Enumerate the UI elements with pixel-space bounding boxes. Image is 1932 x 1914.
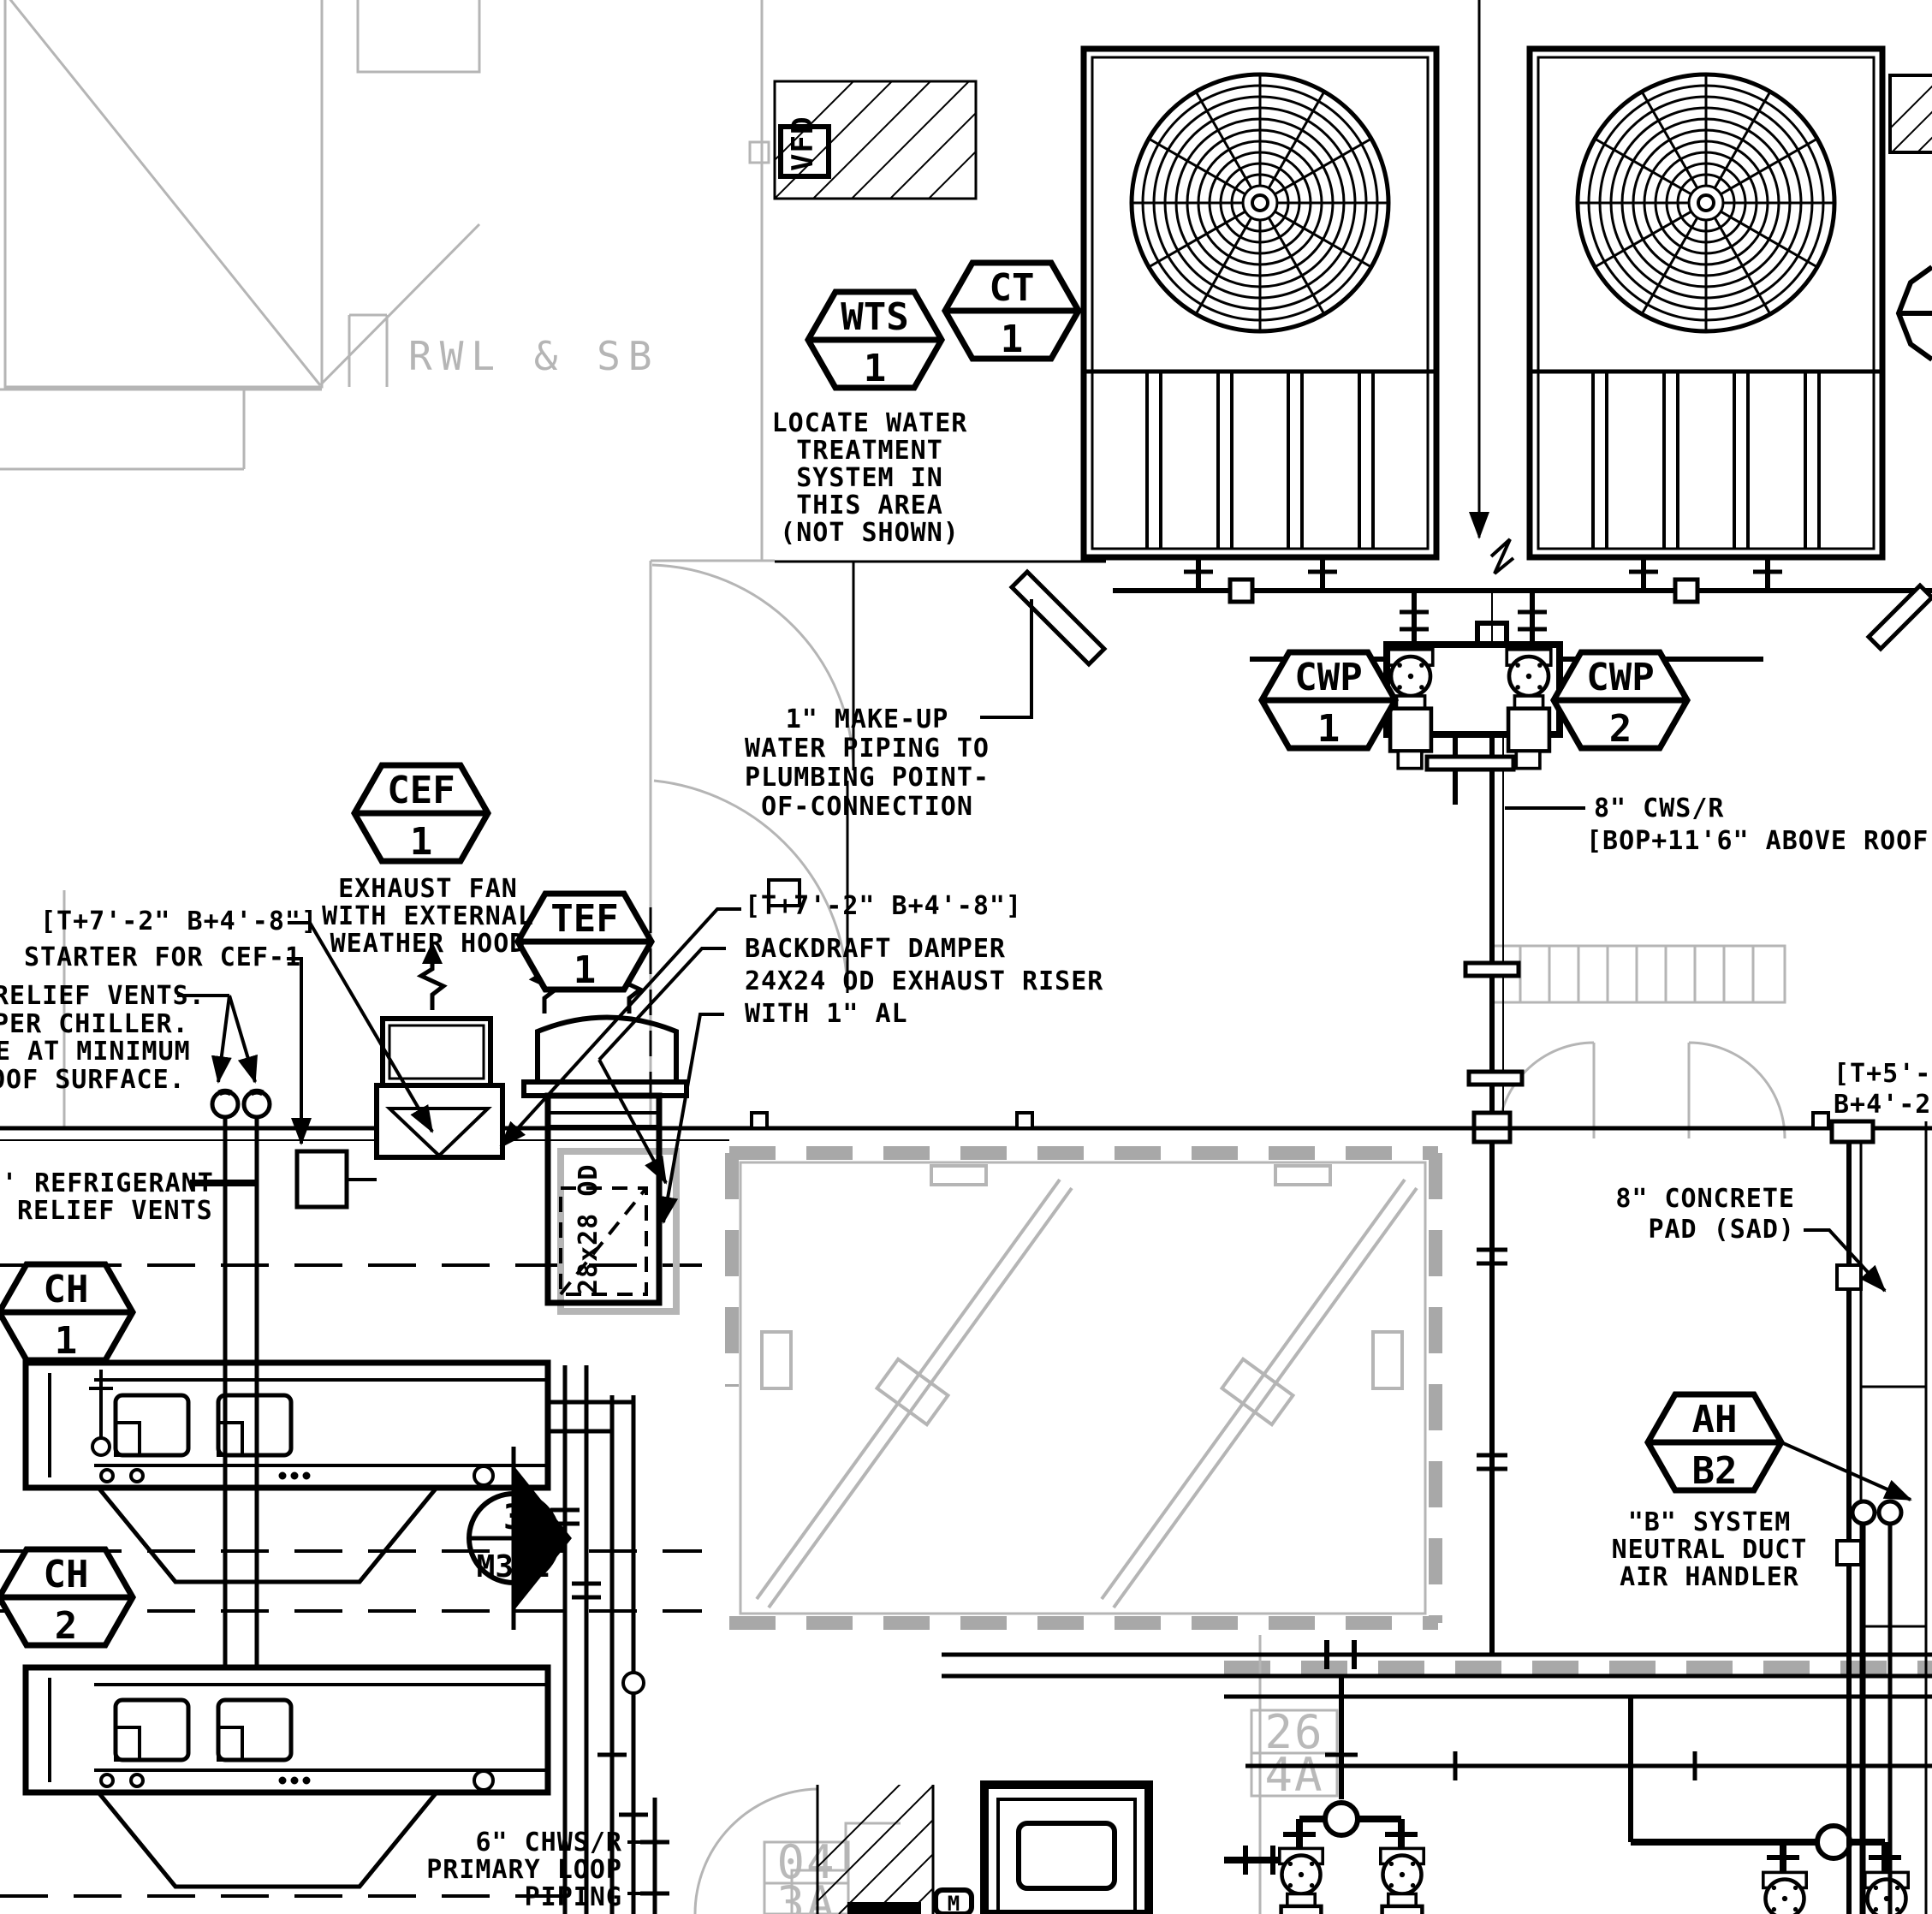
tag-number: 1 [574,948,597,992]
vfd-label: VFD [786,116,820,171]
note-line: WEATHER HOOD [330,929,526,959]
annotation-backdraft: BACKDRAFT DAMPER 24X24 OD EXHAUST RISER … [745,934,1103,1029]
note-line: 6" CHWS/R [475,1828,622,1858]
room-tag-26: 26 4A [1251,1705,1337,1802]
tag-label: CWP [1586,656,1654,699]
note-line: TREATMENT [796,436,943,466]
cooling-tower-2 [1530,49,1882,557]
mechanical-roof-plan: 26 4A 04 3A RWL & SB VFD [0,0,1932,1914]
note-line: PAD (SAD) [1648,1215,1795,1245]
annotation-bracket-left: [T+7'-2" B+4'-8"] [40,906,318,936]
note-line: OF-CONNECTION [761,792,973,822]
note-line: WATER PIPING TO [745,734,990,764]
note-line: E AT MINIMUM [0,1037,191,1067]
tag-label: CEF [387,769,455,812]
tag-ch-2: CH 2 [0,1549,133,1648]
tag-cef-1: CEF 1 [354,765,488,864]
note-line: PIPING [525,1882,622,1912]
tag-label: CH [44,1268,89,1311]
note-line: PRIMARY LOOP [426,1855,622,1885]
tag-label: TEF [550,897,618,941]
motor-label: M [948,1892,960,1914]
note-line: WITH EXTERNAL [322,901,534,931]
note-line: THIS AREA [796,490,943,520]
tag-number: 1 [410,820,433,864]
tag-number: 1 [55,1319,78,1363]
room-suffix: 3A [776,1876,835,1914]
pump-assembly-left [1224,1803,1424,1914]
tag-ah-b2: AH B2 [1648,1394,1781,1493]
top-leader-arrow [1479,0,1513,574]
duct-size-label: 28x28 OD [574,1164,603,1295]
annotation-locate-water: LOCATE WATER TREATMENT SYSTEM IN THIS AR… [772,408,968,548]
note-line: OOF SURFACE. [0,1065,186,1095]
annotation-cws-r: 8" CWS/R [BOP+11'6" ABOVE ROOF] [1586,794,1932,856]
section-sheet: M302 [477,1549,551,1584]
tag-ch-1: CH 1 [0,1264,133,1363]
note-line: WITH 1" AL [745,999,908,1029]
note-line: (NOT SHOWN) [780,518,960,548]
note-line: PLUMBING POINT- [745,763,990,793]
note-line: RELIEF VENTS [17,1196,213,1226]
note-line: LOCATE WATER [772,408,968,438]
tag-cwp-1: CWP 1 [1262,652,1395,751]
note-line: ' REFRIGERANT [2,1168,214,1198]
note-line: RELIEF VENTS. [0,981,205,1011]
note-line: NEUTRAL DUCT [1612,1535,1808,1565]
note-line: 1" MAKE-UP [786,704,949,734]
note-line: "B" SYSTEM [1628,1507,1792,1537]
note-line: 8" CWS/R [1594,794,1725,823]
note-line: PER CHILLER. [0,1009,189,1039]
tag-label: CT [990,266,1035,310]
tag-number: 2 [1609,707,1632,751]
drawing-canvas: 26 4A 04 3A RWL & SB VFD [0,0,1932,1914]
annotation-bracket-center: [T+7'-2" B+4'-8"] [745,891,1022,921]
tag-number: B2 [1692,1449,1738,1493]
room-tag-04: 04 3A [764,1835,848,1914]
edge-partials [1866,75,1932,360]
tag-number: 1 [1001,318,1024,361]
annotation-relief-note: RELIEF VENTS. PER CHILLER. E AT MINIMUM … [0,981,205,1095]
vfd-panel: VFD [736,79,1049,199]
pump-assembly-right [1631,1697,1908,1914]
annotation-b-system: "B" SYSTEM NEUTRAL DUCT AIR HANDLER [1612,1507,1808,1592]
note-line: 24X24 OD EXHAUST RISER [745,966,1103,996]
note-line: [T+5'-8 [1834,1059,1932,1089]
tag-cwp-2: CWP 2 [1554,652,1687,751]
annotation-refrigerant: ' REFRIGERANT RELIEF VENTS [2,1168,214,1226]
annotation-exhaust-fan: EXHAUST FAN WITH EXTERNAL WEATHER HOOD [322,874,534,959]
ah-b2-unit [1832,1121,1926,1914]
annotation-chws: 6" CHWS/R PRIMARY LOOP PIPING [426,1828,622,1912]
cooling-tower-1 [1084,49,1436,557]
tag-wts-1: WTS 1 [808,292,942,390]
mechanical-unit-bottom [936,1785,1149,1914]
tag-label: CH [44,1553,89,1596]
rwl-sb-label: RWL & SB [408,333,660,379]
tag-ct-1: CT 1 [945,263,1079,361]
section-number: 3 [503,1498,524,1537]
note-line: AIR HANDLER [1620,1562,1799,1592]
note-line: [BOP+11'6" ABOVE ROOF] [1586,826,1932,856]
section-cut-symbol: 3 M302 [469,1447,572,1630]
roof-edge [0,1113,1932,1140]
note-line: 8" CONCRETE [1615,1184,1795,1214]
tag-label: CWP [1294,656,1362,699]
note-line: B+4'-2' [1834,1090,1932,1120]
note-line: BACKDRAFT DAMPER [745,934,1006,964]
chiller-2 [26,1667,548,1887]
cef-exhaust-fan-unit [297,1019,502,1207]
tef-exhaust-fan-unit: 28x28 OD [524,1018,687,1312]
annotation-concrete-pad: 8" CONCRETE PAD (SAD) [1615,1184,1795,1245]
tag-number: 1 [1317,707,1341,751]
annotation-makeup-water: 1" MAKE-UP WATER PIPING TO PLUMBING POIN… [745,704,990,822]
tag-number: 1 [864,347,887,390]
tag-label: AH [1692,1398,1738,1441]
note-line: SYSTEM IN [796,463,943,493]
room-suffix: 4A [1264,1748,1323,1802]
annotation-starter: STARTER FOR CEF-1 [24,942,301,972]
tag-number: 2 [55,1604,78,1648]
tag-label: WTS [841,295,908,339]
annotation-bracket-right: [T+5'-8 B+4'-2' [1834,1059,1932,1120]
note-line: EXHAUST FAN [338,874,518,904]
tag-tef-1: TEF 1 [518,894,651,992]
